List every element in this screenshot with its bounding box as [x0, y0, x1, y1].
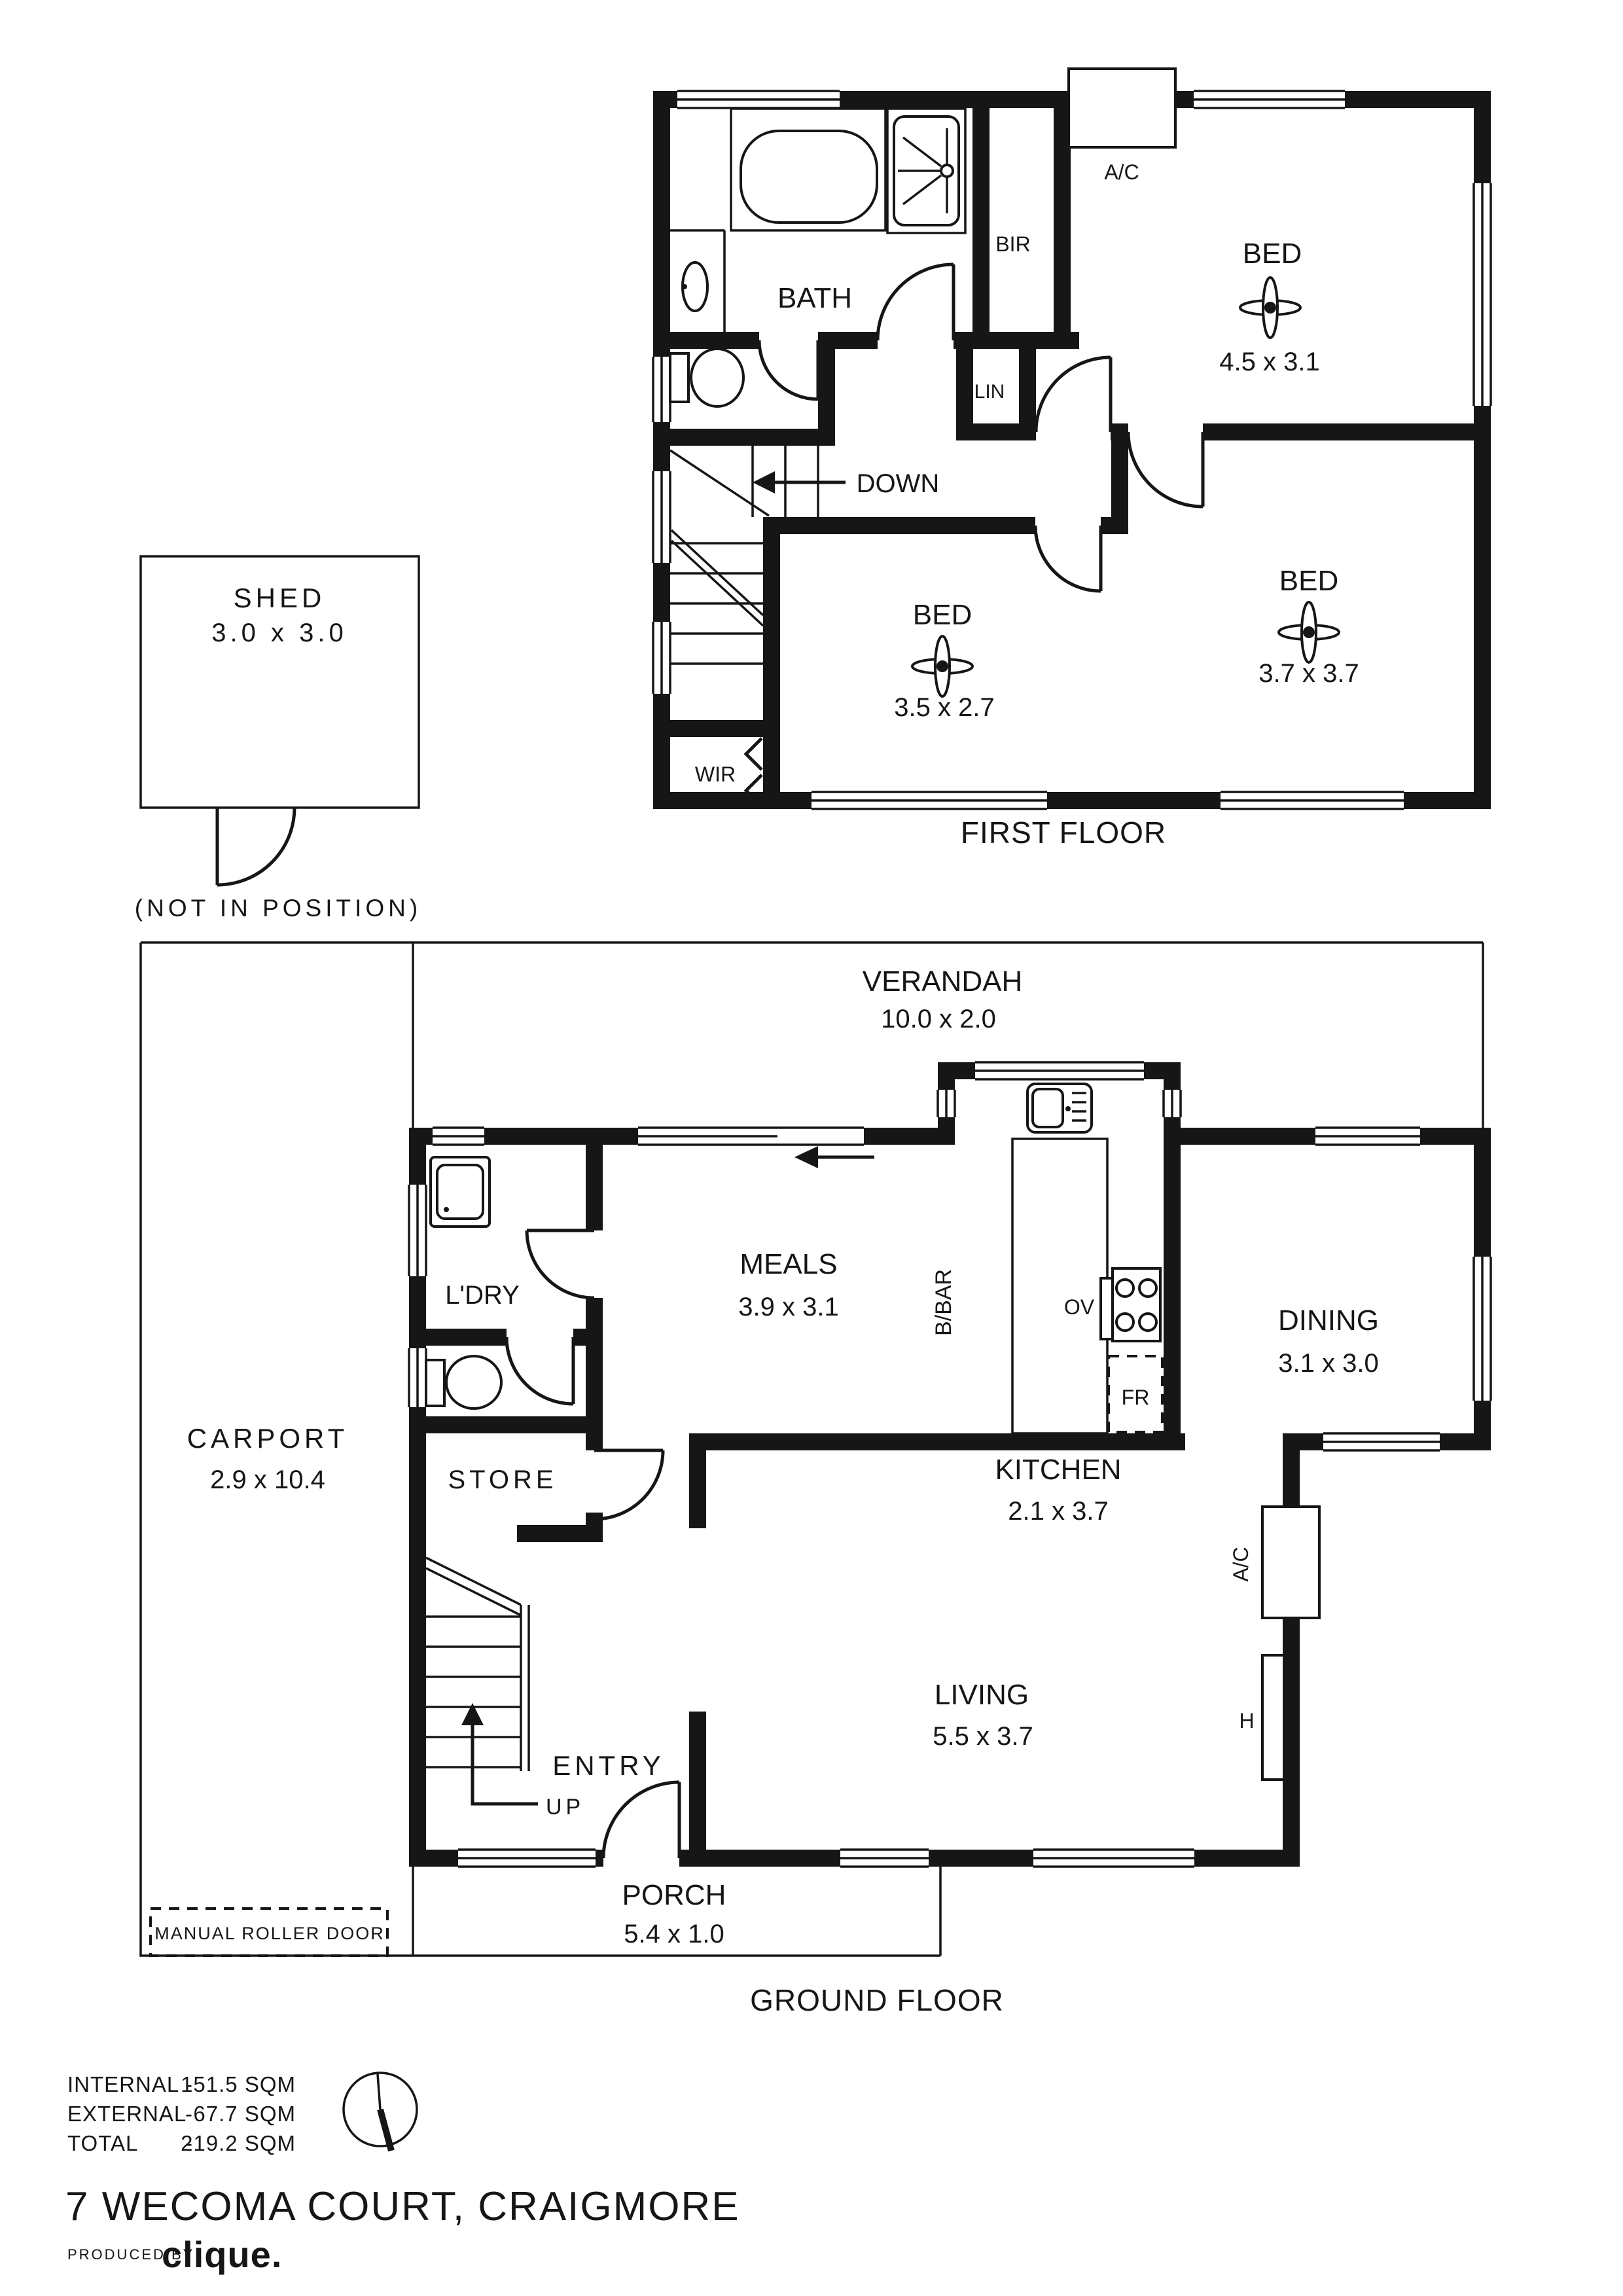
room-dims-bed3: 3.7 x 3.7: [1258, 659, 1359, 688]
ceiling-fan-icon: [1279, 602, 1339, 662]
label-down: DOWN: [857, 469, 940, 498]
room-label-lin: LIN: [974, 381, 1005, 403]
area-legend: INTERNAL - 151.5 SQM EXTERNAL - 67.7 SQM…: [67, 2072, 417, 2155]
ac-unit: [1069, 69, 1175, 147]
ac-unit: [1262, 1507, 1319, 1618]
stairs-up: [426, 1558, 529, 1771]
bathtub-icon: [731, 109, 885, 230]
label-h: H: [1239, 1709, 1254, 1732]
room-label-bed1: BED: [1243, 238, 1302, 270]
room-label-kitchen: KITCHEN: [995, 1454, 1121, 1486]
page-title: 7 WECOMA COURT, CRAIGMORE: [65, 2184, 740, 2229]
floorplan-page: BATH BIR LIN A/C DOWN WIR BED 4.5 x 3.1 …: [0, 0, 1623, 2296]
laundry-trough-icon: [431, 1157, 490, 1227]
legend-value: 219.2 SQM: [181, 2131, 296, 2155]
shed-label: SHED: [234, 583, 326, 613]
room-label-wir: WIR: [695, 762, 736, 786]
room-label-bir: BIR: [995, 232, 1030, 256]
room-dims-carport: 2.9 x 10.4: [210, 1465, 325, 1494]
room-dims-porch: 5.4 x 1.0: [624, 1920, 724, 1948]
shed-plan: SHED 3.0 x 3.0 (NOT IN POSITION): [135, 556, 421, 922]
stove-icon: [1101, 1268, 1160, 1341]
room-dims-verandah: 10.0 x 2.0: [881, 1005, 996, 1033]
footer: PRODUCED BY clique.: [67, 2234, 282, 2275]
first-floor-caption: FIRST FLOOR: [961, 816, 1166, 850]
label-up: UP: [546, 1795, 584, 1820]
breakfast-bar-island: [1012, 1139, 1107, 1433]
room-label-entry: ENTRY: [552, 1750, 665, 1781]
shed-dims: 3.0 x 3.0: [211, 619, 347, 647]
room-label-store: STORE: [448, 1465, 557, 1494]
legend-dash: -: [185, 2102, 193, 2126]
room-label-bed3: BED: [1279, 565, 1338, 597]
room-label-ldry: L'DRY: [445, 1281, 520, 1310]
label-bbar: B/BAR: [931, 1269, 956, 1336]
shed-note: (NOT IN POSITION): [135, 895, 421, 922]
legend-label: INTERNAL: [67, 2072, 179, 2096]
ground-floor-plan: VERANDAH 10.0 x 2.0 CARPORT 2.9 x 10.4 L…: [141, 942, 1491, 2017]
room-label-porch: PORCH: [622, 1879, 726, 1911]
label-roller-door: MANUAL ROLLER DOOR: [154, 1924, 385, 1943]
stairs-down: [670, 446, 818, 664]
sliding-door-arrow: [794, 1146, 874, 1168]
down-arrow: [753, 471, 846, 493]
room-label-verandah: VERANDAH: [863, 965, 1023, 997]
ceiling-fan-icon: [1240, 278, 1300, 338]
legend-label: EXTERNAL: [67, 2102, 187, 2126]
room-dims-dining: 3.1 x 3.0: [1278, 1349, 1378, 1378]
room-label-dining: DINING: [1278, 1304, 1379, 1336]
room-dims-kitchen: 2.1 x 3.7: [1008, 1497, 1108, 1526]
up-arrow: [461, 1703, 538, 1804]
shower-icon: [887, 109, 965, 233]
room-label-bed2: BED: [913, 599, 972, 631]
shed-door-arc: [217, 808, 294, 885]
first-floor-plan: BATH BIR LIN A/C DOWN WIR BED 4.5 x 3.1 …: [653, 69, 1491, 850]
room-label-living: LIVING: [935, 1679, 1029, 1711]
room-dims-living: 5.5 x 3.7: [933, 1722, 1033, 1751]
label-ov: OV: [1064, 1295, 1095, 1319]
north-compass-icon: [344, 2073, 417, 2151]
legend-value: 67.7 SQM: [193, 2102, 296, 2126]
room-dims-bed1: 4.5 x 3.1: [1219, 348, 1319, 376]
kitchen-sink-icon: [1027, 1084, 1092, 1132]
legend-label: TOTAL: [67, 2131, 138, 2155]
label-fr: FR: [1122, 1386, 1150, 1409]
ceiling-fan-icon: [912, 636, 972, 696]
room-label-bath: BATH: [777, 282, 852, 314]
ground-floor-caption: GROUND FLOOR: [750, 1983, 1004, 2017]
label-ac: A/C: [1229, 1547, 1253, 1581]
room-label-meals: MEALS: [740, 1248, 837, 1280]
toilet-icon: [670, 349, 743, 406]
room-dims-meals: 3.9 x 3.1: [738, 1293, 838, 1321]
legend-value: 151.5 SQM: [181, 2072, 296, 2096]
toilet-icon: [426, 1356, 501, 1408]
label-ac: A/C: [1104, 160, 1139, 184]
room-label-carport: CARPORT: [187, 1423, 349, 1454]
room-dims-bed2: 3.5 x 2.7: [894, 693, 994, 722]
vanity-icon: [670, 230, 724, 332]
heater-unit: [1262, 1655, 1284, 1780]
brand-logo: clique.: [162, 2234, 282, 2275]
